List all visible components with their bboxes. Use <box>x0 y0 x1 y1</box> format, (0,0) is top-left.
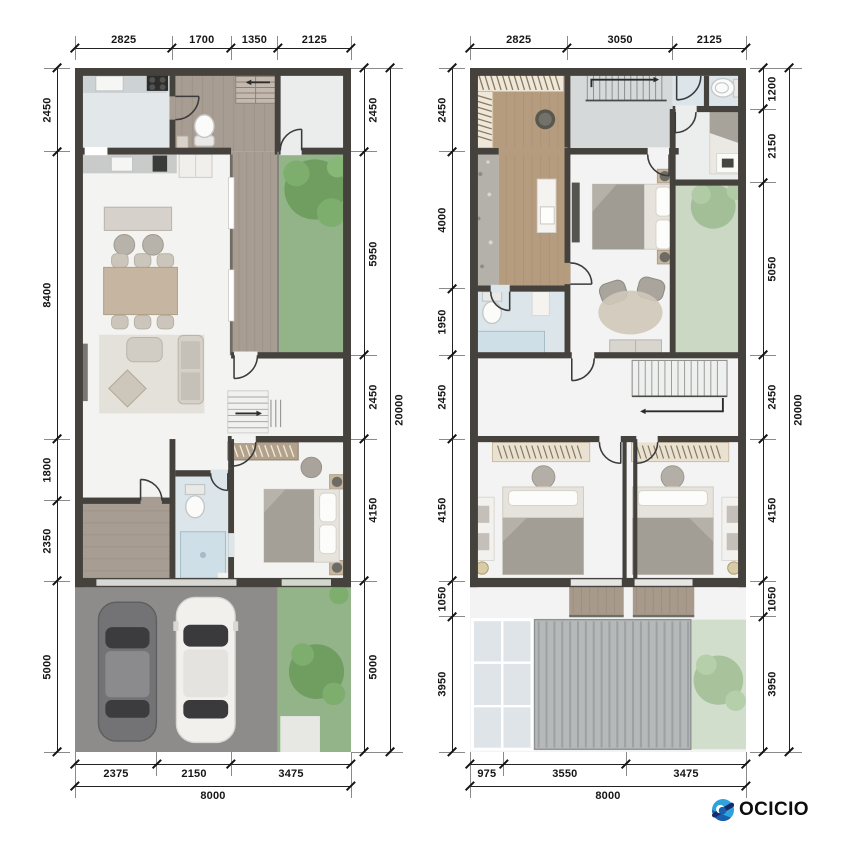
dim-chain-second-right-total: 20000 <box>789 68 790 752</box>
dimension-label: 4150 <box>438 490 449 530</box>
dimension-label: 8000 <box>595 791 620 802</box>
dimension-label: 1800 <box>43 450 54 490</box>
dimension-segment: 20000 <box>789 68 790 752</box>
dimension-segment: 2375 <box>75 764 157 765</box>
dimension-segment: 2825 <box>470 48 567 49</box>
dimension-label: 2350 <box>43 521 54 561</box>
dim-chain-second-top: 282530502125 <box>470 48 746 49</box>
dimension-segment: 3475 <box>231 764 351 765</box>
dimension-segment: 4150 <box>452 439 453 581</box>
dimension-segment: 2450 <box>452 68 453 152</box>
dimension-label: 1200 <box>768 69 779 109</box>
dimension-label: 3050 <box>607 35 632 46</box>
dimension-label: 1050 <box>768 579 779 619</box>
dimension-label: 1700 <box>189 35 214 46</box>
dimension-segment: 1200 <box>763 68 764 109</box>
dimension-label: 3950 <box>768 664 779 704</box>
car-dark <box>98 602 156 741</box>
dimension-label: 2125 <box>697 35 722 46</box>
dimension-segment: 5000 <box>364 581 365 752</box>
dimension-segment: 1050 <box>452 581 453 617</box>
dimension-label: 5000 <box>43 647 54 687</box>
dimension-segment: 2450 <box>452 355 453 439</box>
dimension-label: 2825 <box>506 35 531 46</box>
dimension-label: 1350 <box>242 35 267 46</box>
dimension-segment: 2450 <box>364 355 365 439</box>
dim-chain-second-right: 1200215050502450415010503950 <box>763 68 764 752</box>
dimension-label: 4150 <box>369 490 380 530</box>
bathroom-top <box>712 79 743 97</box>
dimension-segment: 2150 <box>763 109 764 183</box>
ocicio-logo: OCICIO <box>712 799 809 821</box>
dimension-label: 3475 <box>673 769 698 780</box>
floor-plan-sheet: 2825170013502125 237521503475 8000 24508… <box>0 0 850 842</box>
dimension-label: 3550 <box>552 769 577 780</box>
dimension-label: 20000 <box>395 390 406 430</box>
dimension-label: 4150 <box>768 490 779 530</box>
dimension-label: 20000 <box>794 390 805 430</box>
dimension-segment: 4150 <box>364 439 365 581</box>
dimension-segment: 1050 <box>763 581 764 617</box>
dimension-label: 2450 <box>43 90 54 130</box>
kitchen <box>80 73 168 93</box>
dimension-label: 2450 <box>438 377 449 417</box>
dimension-segment: 2450 <box>364 68 365 152</box>
dimension-label: 5000 <box>369 647 380 687</box>
dim-chain-ground-bottom: 237521503475 <box>75 764 351 765</box>
dim-chain-ground-right-total: 20000 <box>390 68 391 752</box>
wardrobe <box>228 442 298 460</box>
dimension-segment: 8400 <box>57 152 58 439</box>
dimension-label: 5950 <box>369 234 380 274</box>
dim-chain-second-bottom-total: 8000 <box>470 786 746 787</box>
dimension-segment: 3950 <box>763 617 764 752</box>
dimension-segment: 2125 <box>673 48 746 49</box>
dimension-segment: 2350 <box>57 501 58 581</box>
dimension-label: 2825 <box>111 35 136 46</box>
dimension-label: 2375 <box>103 769 128 780</box>
dimension-label: 4000 <box>438 200 449 240</box>
dimension-label: 2450 <box>369 377 380 417</box>
ocicio-logo-text: OCICIO <box>739 799 809 821</box>
dimension-segment: 5000 <box>57 581 58 752</box>
floors <box>470 68 746 752</box>
dimension-label: 2450 <box>768 377 779 417</box>
dimension-segment: 1800 <box>57 439 58 501</box>
dimension-segment: 2450 <box>763 355 764 439</box>
dimension-label: 2450 <box>369 90 380 130</box>
dimension-label: 2150 <box>768 126 779 166</box>
dining-set <box>104 254 178 329</box>
dimension-segment: 1950 <box>452 289 453 356</box>
staircase-entry <box>236 71 276 103</box>
dimension-segment: 2125 <box>278 48 351 49</box>
dimension-segment: 8000 <box>470 786 746 787</box>
dimension-label: 8000 <box>200 791 225 802</box>
dimension-label: 2125 <box>302 35 327 46</box>
dimension-segment: 3050 <box>567 48 672 49</box>
ocicio-logo-icon <box>712 799 734 821</box>
dimension-label: 2150 <box>181 769 206 780</box>
ground-floor-drawing <box>75 68 351 752</box>
dimension-label: 1050 <box>438 579 449 619</box>
dimension-segment: 2450 <box>57 68 58 152</box>
second-floor-drawing <box>470 68 746 752</box>
dim-chain-second-bottom: 97535503475 <box>470 764 746 765</box>
dimension-segment: 975 <box>470 764 504 765</box>
dim-chain-ground-top: 2825170013502125 <box>75 48 351 49</box>
ground-floor-plan <box>75 68 351 752</box>
dimension-segment: 1350 <box>231 48 278 49</box>
dimension-segment: 1700 <box>172 48 231 49</box>
dimension-label: 1950 <box>438 302 449 342</box>
dim-chain-ground-left: 24508400180023505000 <box>57 68 58 752</box>
dimension-segment: 4000 <box>452 152 453 289</box>
dimension-segment: 3475 <box>626 764 746 765</box>
dimension-label: 2450 <box>438 90 449 130</box>
dimension-label: 3475 <box>278 769 303 780</box>
dim-chain-second-left: 2450400019502450415010503950 <box>452 68 453 752</box>
car-white <box>173 597 238 742</box>
dimension-label: 975 <box>477 769 496 780</box>
dimension-segment: 5050 <box>763 183 764 356</box>
vanity <box>537 179 556 232</box>
dimension-label: 8400 <box>43 275 54 315</box>
dimension-segment: 3550 <box>504 764 626 765</box>
dimension-segment: 4150 <box>763 439 764 581</box>
dim-chain-ground-right: 24505950245041505000 <box>364 68 365 752</box>
second-floor-plan <box>470 68 746 752</box>
dimension-segment: 5950 <box>364 152 365 355</box>
dimension-segment: 8000 <box>75 786 351 787</box>
dimension-segment: 2150 <box>157 764 231 765</box>
dimension-segment: 20000 <box>390 68 391 752</box>
dimension-segment: 3950 <box>452 617 453 752</box>
dimension-segment: 2825 <box>75 48 172 49</box>
dimension-label: 3950 <box>438 664 449 704</box>
dim-chain-ground-bottom-total: 8000 <box>75 786 351 787</box>
dimension-label: 5050 <box>768 249 779 289</box>
